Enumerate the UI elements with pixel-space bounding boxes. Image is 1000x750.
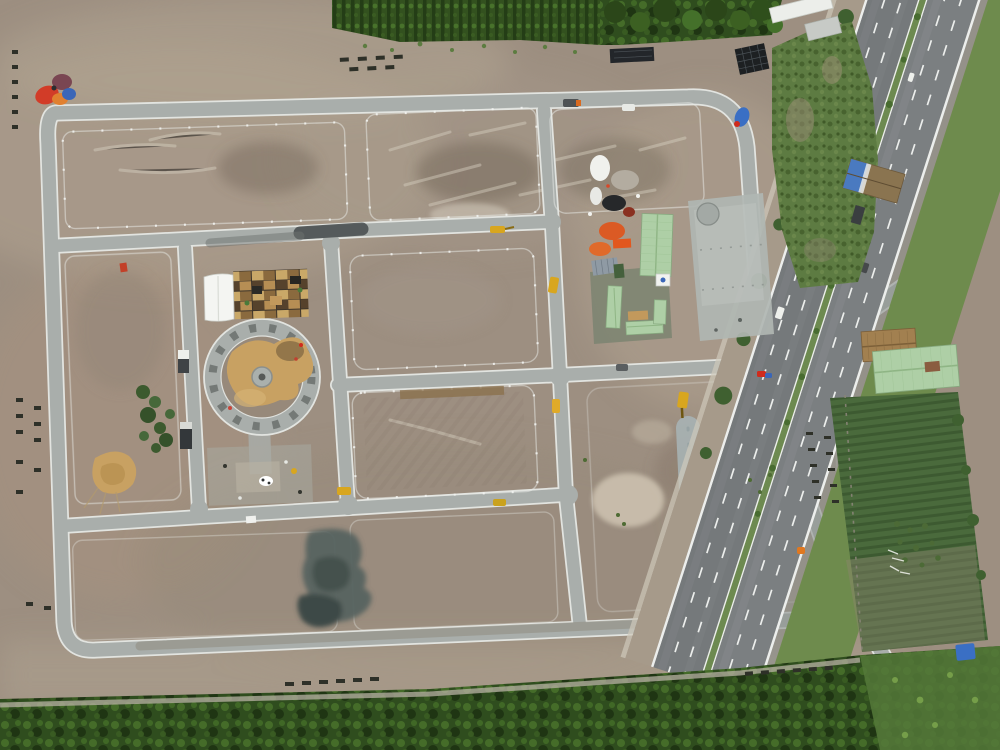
excavator: [552, 399, 560, 413]
blue-tarp-stack: [955, 643, 976, 661]
white-truck: [622, 104, 635, 111]
wheel-loader: [797, 547, 805, 554]
harrow-marks: [363, 392, 527, 491]
excavator: [337, 487, 351, 495]
materials-yard: [233, 269, 309, 320]
main-green-roof-building: [640, 213, 673, 276]
concrete-pad: [688, 193, 774, 341]
aerial-photo: [0, 0, 1000, 750]
green-metal-building: [872, 344, 959, 393]
wood-pile: [628, 310, 648, 320]
dark-green-shed: [613, 264, 624, 279]
circular-foundation: [697, 203, 719, 225]
machine: [493, 499, 506, 506]
gray-truck: [616, 364, 628, 371]
sparse-field-area: [846, 545, 985, 652]
white-annex: [656, 274, 670, 286]
northeast-scrub-field: [772, 22, 878, 288]
roller-on-road: [563, 99, 581, 107]
asphalt-patch: [300, 229, 362, 233]
aerial-photo-stage: [0, 0, 1000, 750]
red-marker: [119, 262, 127, 272]
small-machine: [291, 468, 297, 474]
bright-bushes: [860, 646, 1000, 750]
